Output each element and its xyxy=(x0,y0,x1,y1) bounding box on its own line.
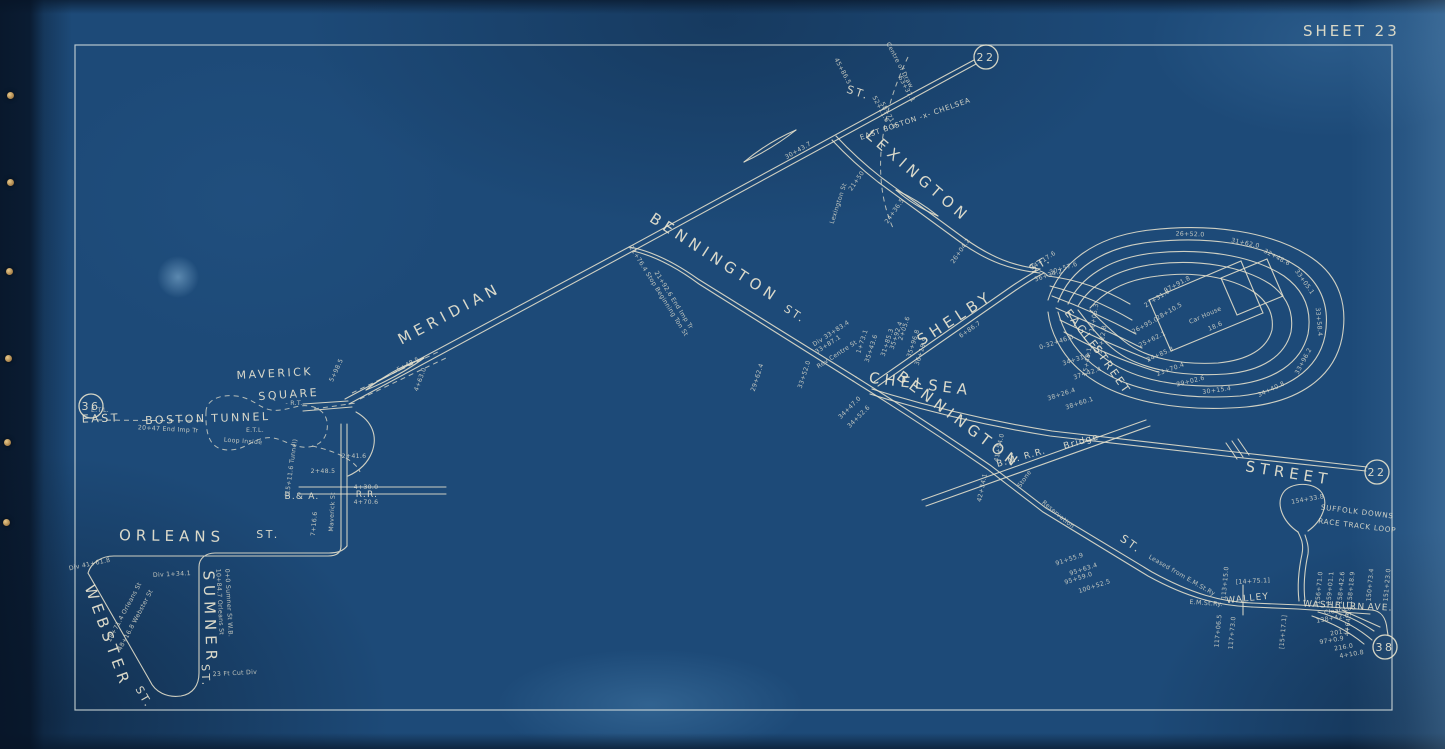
track-line xyxy=(926,426,1150,506)
annotation-label: 32+48.6 xyxy=(1262,248,1291,268)
annotation-label: 0-32+46.0 xyxy=(1038,334,1074,352)
annotation-label: Reservation xyxy=(1040,499,1075,530)
annotation-label: 38+60.1 xyxy=(1065,396,1095,412)
annotation-label: 45+86.5 xyxy=(832,57,852,86)
annotation-label: 5+98.5 xyxy=(328,358,345,383)
track-line xyxy=(303,401,348,404)
annotation-label: 158+42.6 xyxy=(1337,571,1347,605)
annotation-label: 24+36.5 xyxy=(884,197,906,225)
track-line xyxy=(1304,535,1308,601)
annotation-label: 7+16.6 xyxy=(310,511,319,536)
annotation-label: 151+23.0 xyxy=(1383,568,1393,602)
annotation-label: 113+15.0 xyxy=(1221,566,1231,600)
annotation-label: 38+26.4 xyxy=(1047,387,1077,403)
annotation-label: 27+31.6 xyxy=(1143,288,1171,309)
annotation-label: 25+62.1 xyxy=(1138,330,1167,349)
sheet-reference-number: 22 xyxy=(1368,466,1387,479)
annotation-label: 21+76.4 Stop Beginning Ton St xyxy=(627,245,689,338)
annotation-label: 26+95.0 xyxy=(1131,316,1160,336)
annotation-label: 29+62.4 xyxy=(750,363,766,393)
blueprint-sheet: 36222238MERIDIANBENNINGTONST.LEXINGTONST… xyxy=(0,0,1445,749)
annotation-label: Loop Inside xyxy=(224,437,263,447)
track-line xyxy=(348,412,374,476)
annotation-label: Leased from E.M.St.Ry xyxy=(1147,554,1216,598)
street-label: ST. xyxy=(133,684,156,711)
street-label: ST. xyxy=(782,302,809,326)
annotation-label: - R.T. xyxy=(285,400,302,407)
annotation-label: 23 Ft Cut Div xyxy=(213,669,258,678)
track-line xyxy=(856,377,1252,603)
annotation-label: 4+70.6 xyxy=(354,499,379,506)
annotation-label: Maverick St xyxy=(328,492,337,532)
annotation-label: (15+11.6 Tunnel) xyxy=(284,438,299,497)
annotation-label: 154+33.8 xyxy=(1291,493,1325,506)
street-label: ST. xyxy=(199,664,213,688)
annotation-label: Stone xyxy=(1016,469,1033,489)
street-label: AVE. xyxy=(1367,602,1393,613)
annotation-label: E.M.St.Ry. xyxy=(1189,599,1223,608)
annotation-label: 2+48.5 xyxy=(311,468,336,475)
annotation-label: 2+41.6 xyxy=(342,453,367,460)
annotation-label: 158+18.9 xyxy=(1347,571,1357,605)
annotation-label: Div 1+34.1 xyxy=(153,570,191,579)
sheet-reference-number: 22 xyxy=(977,51,996,64)
track-line xyxy=(633,64,976,251)
annotation-label: 91+55.9 xyxy=(1055,552,1085,568)
track-line xyxy=(303,407,352,411)
annotation-label: E.T.L. xyxy=(91,407,109,414)
annotation-label: 4+30.0 xyxy=(354,484,379,491)
street-label: ST. xyxy=(845,83,871,103)
track-line xyxy=(629,60,974,247)
annotation-label: 150+73.4 xyxy=(1366,568,1376,602)
street-label: WALLEY xyxy=(1226,592,1270,606)
annotation-label: 4+63.0 xyxy=(413,367,428,393)
annotation-label: 30+43.7 xyxy=(784,140,813,161)
annotation-label: 33+58.4 xyxy=(1314,307,1323,336)
annotation-label: 21+50 xyxy=(847,170,866,192)
annotation-label: 30+15.4 xyxy=(1202,385,1232,396)
track-line xyxy=(1298,532,1303,601)
sheet-title: SHEET 23 xyxy=(1303,22,1433,40)
track-line xyxy=(1090,274,1272,363)
track-map: 36222238MERIDIANBENNINGTONST.LEXINGTONST… xyxy=(0,0,1445,749)
track-line xyxy=(832,140,1040,273)
annotation-label: 28+10.5 xyxy=(1155,301,1184,322)
track-line xyxy=(853,381,1252,607)
annotation-label: 26+04.2 xyxy=(950,237,972,265)
annotation-label: 42+34.1 xyxy=(976,473,989,503)
annotation-label: 34+40.8 xyxy=(1257,380,1286,399)
annotation-label: E.T.L. xyxy=(246,427,264,434)
track-line xyxy=(1048,276,1130,304)
street-label: MAVERICK xyxy=(236,365,313,382)
annotation-label: 117+73.0 xyxy=(1228,616,1238,650)
street-label: ST. xyxy=(256,528,279,541)
track-line xyxy=(349,251,633,404)
street-label: Bridge xyxy=(1063,432,1101,452)
street-label: TUNNEL xyxy=(210,410,271,425)
sheet-reference-number: 38 xyxy=(1376,641,1395,654)
annotation-label: 26+52.0 xyxy=(1175,230,1204,238)
annotation-label: 23+70.4 xyxy=(1156,361,1186,377)
annotation-label: 20+47 End Imp Tr xyxy=(138,424,199,434)
annotation-label: Lexington St xyxy=(829,182,849,225)
annotation-label: [15+17.1] xyxy=(1279,614,1289,649)
annotation-label: 33+52.0 xyxy=(797,360,813,390)
street-label: MERIDIAN xyxy=(395,279,505,349)
annotation-label: [14+75.1] xyxy=(1236,577,1271,586)
street-label: ORLEANS xyxy=(119,526,225,546)
street-label: ST. xyxy=(1118,532,1145,556)
annotation-label: 31+62.0 xyxy=(1230,237,1260,250)
track-line xyxy=(922,420,1146,500)
annotation-label: 5+48.5 xyxy=(396,356,421,374)
annotation-label: 159+01.1 xyxy=(1326,571,1336,605)
annotation-label: 18.6 xyxy=(1207,320,1224,332)
annotation-label: 117+06.5 xyxy=(1214,614,1224,648)
